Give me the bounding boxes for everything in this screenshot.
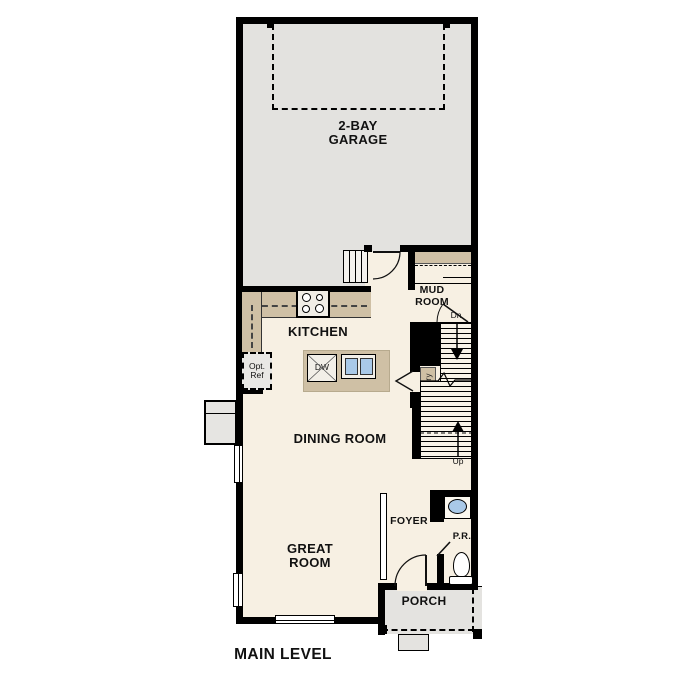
wall-north [236, 17, 478, 24]
wall-stair-chase [410, 322, 440, 366]
sink-basin-left [345, 358, 358, 375]
sink-basin-right [360, 358, 373, 375]
porch-edge-dashed-bottom [382, 629, 474, 631]
wall-east [471, 17, 478, 588]
dishwasher: DW [307, 354, 337, 382]
porch-label: PORCH [402, 595, 447, 608]
stairs-lower-flight [420, 381, 471, 459]
kitchen-counter-left [242, 292, 262, 352]
fireplace-bumpout [204, 400, 237, 445]
kitchen-counter-left-dash [251, 305, 253, 348]
optional-refrigerator-label: Opt. Ref [249, 362, 265, 381]
garage-door-overhead [272, 24, 445, 110]
wall-pr-northwest-chunk [430, 496, 444, 522]
front-door-opening [397, 583, 427, 591]
wall-stair-west [412, 408, 420, 459]
kitchen-sink [341, 354, 376, 379]
great-room-label: GREAT ROOM [287, 542, 333, 571]
burner-1 [302, 293, 311, 302]
greatroom-south-window [275, 615, 335, 624]
stairs-up-label: Up [453, 457, 464, 466]
kitchen-label: KITCHEN [288, 325, 348, 339]
cooktop [296, 289, 330, 318]
porch-post-sw [378, 625, 387, 634]
optional-refrigerator: Opt. Ref [242, 352, 272, 390]
mudroom-label: MUD ROOM [415, 285, 449, 308]
garage-door-post-left [267, 24, 273, 28]
wall-pantry-stub-top [410, 366, 420, 372]
closet-shelf [415, 252, 471, 264]
pr-sink-bowl [448, 499, 467, 514]
fireplace-bumpout-divider [206, 413, 235, 414]
wall-pr-door-stub [437, 554, 444, 583]
porch-edge-dashed-right [472, 588, 474, 632]
burner-2 [316, 294, 323, 301]
pr-label: P.R. [453, 532, 471, 542]
dishwasher-label: DW [314, 363, 330, 372]
foyer-divider-wall [380, 493, 387, 580]
garage-label: 2-BAY GARAGE [329, 119, 388, 148]
porch-post-se [473, 629, 482, 639]
dining-window [234, 445, 243, 483]
burner-4 [315, 304, 324, 313]
porch-step [398, 634, 429, 651]
wall-mudroom-north-left [364, 245, 372, 252]
burner-3 [302, 305, 310, 313]
dining-room-label: DINING ROOM [294, 432, 387, 446]
closet-rod [415, 265, 471, 266]
greatroom-west-window-mullion [238, 574, 239, 606]
foyer-label: FOYER [390, 516, 428, 528]
plan-title: MAIN LEVEL [234, 646, 332, 663]
dining-window-mullion [239, 446, 240, 482]
toilet-tank [449, 576, 473, 585]
wall-closet-west [408, 245, 415, 290]
garage-door-post-right [444, 24, 450, 28]
stairs-upper-flight [440, 322, 471, 381]
closet-door-track [443, 277, 471, 278]
stairs-down-label: Dn [451, 311, 462, 320]
garage-entry-steps [343, 250, 368, 283]
floor-plan: Opt. Ref DW Pantry [0, 0, 687, 687]
greatroom-south-window-mullion [276, 620, 334, 621]
toilet-bowl [453, 552, 470, 577]
greatroom-west-window [233, 573, 243, 607]
